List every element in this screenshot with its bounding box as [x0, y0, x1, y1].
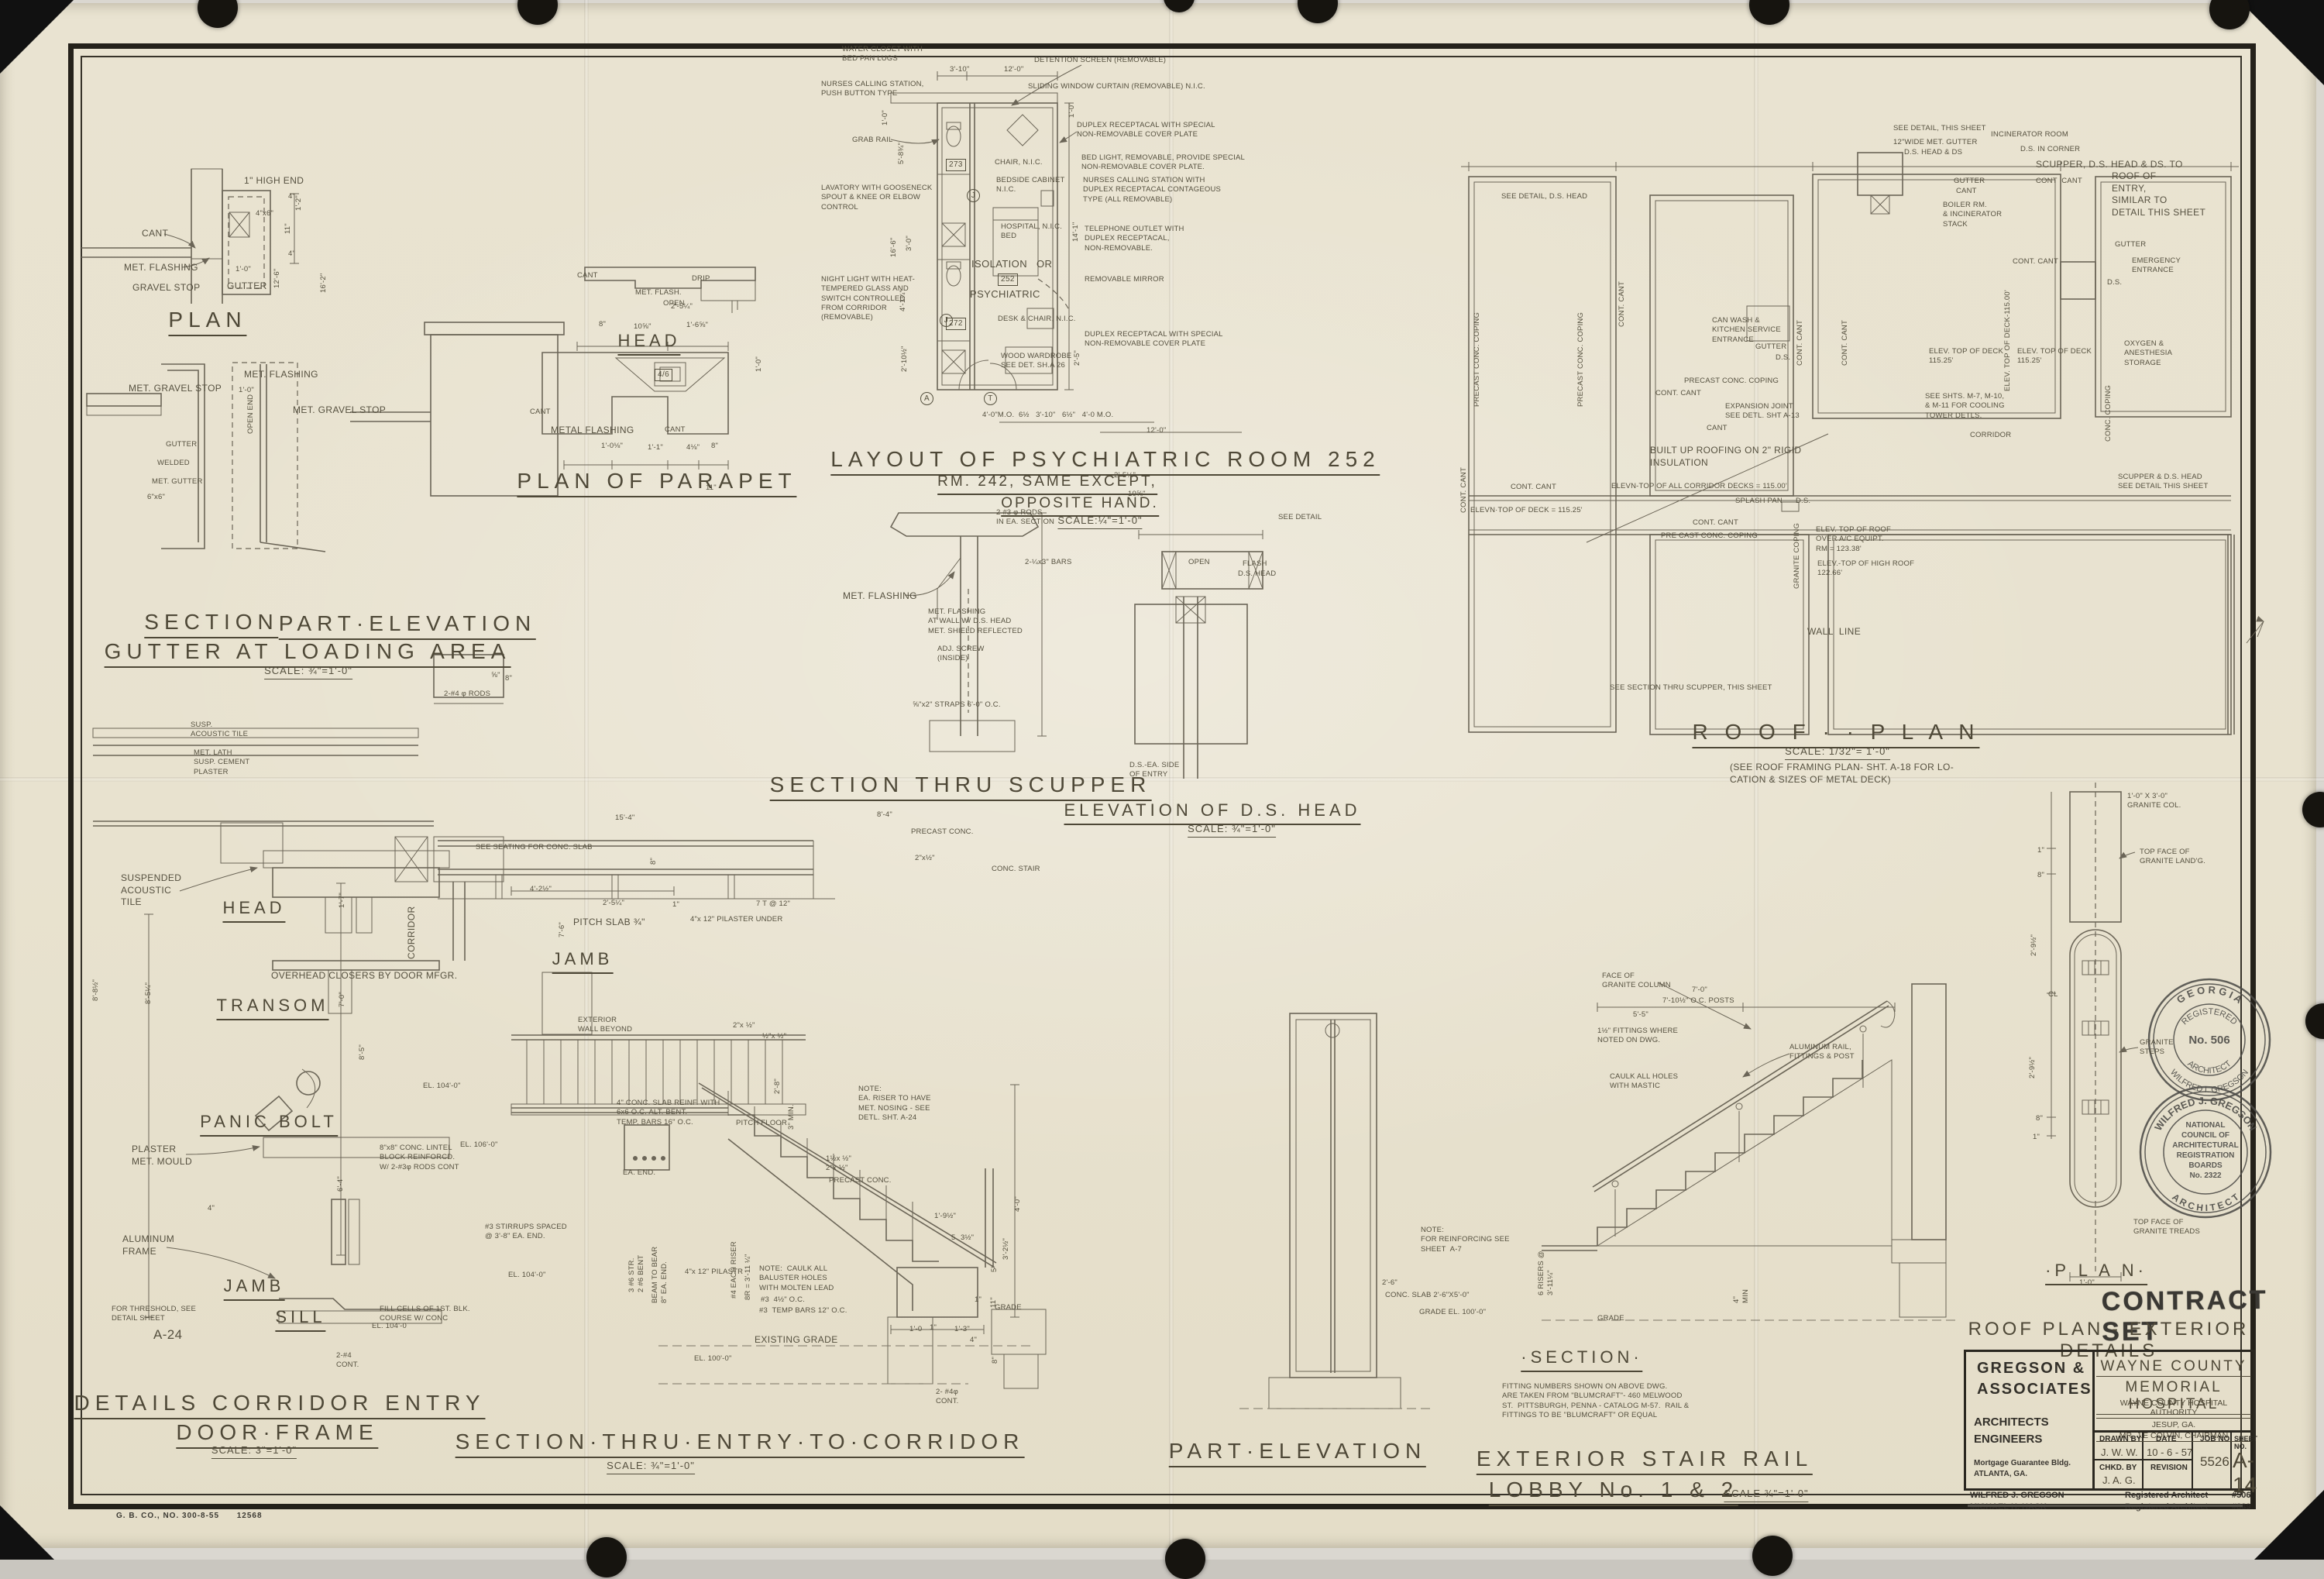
annotation-label: 8" — [2037, 871, 2044, 880]
annotation-label: 4"x6" — [256, 209, 273, 218]
linework-part-elevation — [1239, 1013, 1433, 1409]
annotation-label: SPLASH PAN — [1735, 497, 1783, 506]
annotation-label: NOTE: EA. RISER TO HAVE MET. NOSING - SE… — [858, 1085, 931, 1123]
annotation-label: NOTE: FOR REINFORCING SEE SHEET A-7 — [1421, 1226, 1510, 1254]
annotation-label: 5'-8¾" — [897, 143, 906, 164]
annotation-label: CORRIDOR — [406, 906, 418, 959]
stamp-text: No. 506 — [2188, 1034, 2229, 1047]
annotation-label: 11" — [989, 1297, 999, 1308]
annotation-label: EXTERIOR WALL BEYOND — [578, 1016, 632, 1035]
annotation-label: ROOF OF ENTRY, SIMILAR TO DETAIL THIS SH… — [2112, 170, 2205, 218]
annotation-label: PLASTER MET. MOULD — [132, 1144, 192, 1168]
drawing-title: SECTION·THRU·ENTRY·TO·CORRIDOR — [456, 1430, 1025, 1458]
annotation-label: 7'-10½" O.C. POSTS — [1662, 996, 1734, 1006]
annotation-label: DRIP — [692, 274, 710, 284]
linework-parapet-plan — [542, 342, 728, 470]
annotation-label: CONC. SLAB 2'-6"X5'-0" — [1385, 1291, 1470, 1300]
annotation-label: 1'-9½" — [934, 1212, 956, 1221]
linework-doorframe — [144, 851, 449, 1323]
drawing-title: SILL — [275, 1306, 325, 1332]
drawn-by-label: DRAWN BY — [2099, 1435, 2141, 1443]
annotation-label: 1½" FITTINGS WHERE NOTED ON DWG. — [1597, 1027, 1678, 1046]
annotation-label: 2"x ½" — [733, 1021, 755, 1030]
annotation-label: EL. 104'-0" — [423, 1082, 461, 1091]
annotation-label: SUSP. ACOUSTIC TILE — [191, 721, 248, 740]
annotation-label: 3'-2½" — [1002, 1238, 1011, 1260]
drawing-title: ·P L A N· — [2045, 1260, 2147, 1285]
annotation-label: MET. GUTTER — [152, 477, 203, 487]
annotation-label: CL — [2048, 990, 2058, 999]
punch-hole — [1165, 1539, 1205, 1579]
annotation-label: D.S. IN CORNER — [2020, 145, 2080, 154]
annotation-label: 1" — [975, 1295, 982, 1305]
annotation-label: #3 4½" O.C. — [761, 1295, 805, 1305]
annotation-label: GRANITE STEPS — [2140, 1038, 2174, 1058]
annotation-label: A — [920, 392, 933, 405]
annotation-label: CHAIR, N.I.C. — [995, 158, 1043, 167]
annotation-label: BED LIGHT, REMOVABLE, PROVIDE SPECIAL NO… — [1081, 153, 1245, 173]
svg-text:G E O R G I A: G E O R G I A — [2174, 984, 2245, 1006]
annotation-label: 2'-5¼" — [603, 899, 624, 908]
annotation-label: 1'-7" — [338, 893, 347, 908]
annotation-label: WATER CLOSET WITH BED PAN LUGS — [842, 45, 923, 64]
annotation-label: 1" — [2037, 846, 2044, 855]
annotation-label: 6 RISERS @ 3'-11¼" — [1537, 1250, 1556, 1295]
stamp-text: No. 2322 — [2189, 1171, 2222, 1180]
annotation-label: 11" — [706, 483, 717, 493]
annotation-label: #3 TEMP BARS 12" O.C. — [759, 1306, 847, 1316]
annotation-label: 1" — [2033, 1133, 2040, 1142]
annotation-label: 8" — [2036, 1114, 2043, 1123]
annotation-label: 3'-10" — [950, 65, 969, 74]
drawing-title: GUTTER AT LOADING AREA — [105, 640, 511, 668]
strike-line — [1968, 1505, 2243, 1507]
drawing-title: R O O F · · P L A N — [1692, 721, 1979, 748]
annotation-label: 8" — [991, 1357, 1000, 1364]
annotation-label: BEAM TO BEAR 8" EA. END. — [651, 1247, 670, 1303]
annotation-label: SEE SHTS. M-7, M-10, & M-11 FOR COOLING … — [1925, 392, 2005, 421]
title-block: CONTRACT SET ROOF PLAN - EXTERIOR DETAIL… — [1964, 1278, 2253, 1511]
annotation-label: 3" MIN. — [787, 1104, 796, 1130]
annotation-label: GUTTER — [166, 440, 197, 449]
annotation-label: D.S.-EA. SIDE OF ENTRY — [1129, 761, 1179, 780]
annotation-label: #3 STIRRUPS SPACED @ 3'-8" EA. END. — [485, 1223, 567, 1242]
annotation-label: SEE SECTION THRU SCUPPER, THIS SHEET — [1610, 683, 1772, 693]
annotation-label: PRECAST CONC. COPING — [1473, 312, 1482, 407]
drawing-title: SCALE: ¾"=1'-0" — [1188, 823, 1276, 838]
drawing-title: PART·ELEVATION — [1169, 1440, 1426, 1467]
firm-address: Mortgage Guarantee Bldg. ATLANTA, GA. — [1974, 1459, 2071, 1478]
annotation-label: LAVATORY WITH GOOSENECK SPOUT & KNEE OR … — [821, 184, 932, 212]
annotation-label: SUSPENDED ACOUSTIC TILE — [121, 872, 181, 909]
title-block-grid: GREGSON & ASSOCIATES ARCHITECTS ENGINEER… — [1964, 1350, 2255, 1491]
annotation-label: 4'-0"M.O. 6½ 3'-10" 6½" 4'-0 M.O. — [982, 411, 1113, 420]
annotation-label: 10⅝" — [634, 322, 651, 332]
annotation-label: CAN WASH & KITCHEN SERVICE ENTRANCE — [1712, 316, 1781, 345]
annotation-label: 1'-0" — [1067, 102, 1077, 118]
annotation-label: BUILT UP ROOFING ON 2" RIGID INSULATION — [1650, 445, 1802, 469]
chkd-by-value: J. A. G. — [2102, 1474, 2136, 1486]
annotation-label: ELEV. TOP OF ROOF OVER A/C EQUIPT. RM = … — [1816, 525, 1891, 554]
firm-role: ARCHITECTS ENGINEERS — [1974, 1416, 2049, 1446]
annotation-label: 1'-0" — [881, 110, 890, 126]
annotation-label: SEE DETAIL — [1278, 513, 1322, 522]
annotation-label: 1'-0⅛" — [601, 442, 623, 451]
scan-corner — [2254, 1490, 2324, 1560]
annotation-label: GUTTER — [227, 280, 267, 293]
annotation-label: GRAB RAIL — [852, 136, 892, 145]
stamp-text: NATIONAL — [2186, 1121, 2226, 1130]
annotation-label: PSYCHIATRIC — [970, 288, 1040, 301]
annotation-label: REMOVABLE MIRROR — [1085, 275, 1164, 284]
annotation-label: INCINERATOR ROOM — [1991, 130, 2068, 139]
annotation-label: WALL LINE — [1807, 626, 1861, 638]
annotation-label: FACE OF GRANITE COLUMN — [1602, 972, 1671, 991]
annotation-label: ADJ. SCREW (INSIDE) — [937, 645, 985, 664]
annotation-label: 5" — [990, 1265, 999, 1272]
annotation-label: SEE SEATING FOR CONC. SLAB — [476, 843, 593, 852]
annotation-label: MET. GRAVEL STOP — [129, 383, 222, 395]
drawing-title: JAMB — [552, 948, 614, 974]
drawing-title: LAYOUT OF PSYCHIATRIC ROOM 252 — [830, 448, 1380, 476]
stamp-text: ARCHITECTURAL — [2172, 1141, 2239, 1150]
annotation-label: SCUPPER & D.S. HEAD SEE DETAIL THIS SHEE… — [2118, 473, 2208, 492]
annotation-label: FLASH — [1243, 559, 1267, 569]
annotation-label: 5 — [951, 1233, 955, 1243]
drawing-title: DETAILS CORRIDOR ENTRY — [74, 1392, 485, 1419]
annotation-label: 4'-0" — [1013, 1196, 1023, 1212]
annotation-label: 5'-5" — [1633, 1010, 1648, 1020]
annotation-label: 1'-0 — [909, 1325, 922, 1334]
annotation-label: 4" CONC. SLAB REINF. WITH 6x6 O.C. ALT. … — [617, 1099, 720, 1127]
annotation-label: DETENTION SCREEN (REMOVABLE) — [1034, 56, 1166, 65]
annotation-label: ISOLATION OR — [971, 258, 1052, 271]
annotation-label: G. B. CO., NO. 300-8-55 12568 — [116, 1511, 263, 1521]
annotation-label: 1'-0" — [235, 265, 251, 274]
linework-granite-plan — [2047, 783, 2138, 1281]
annotation-label: EMERGENCY ENTRANCE — [2132, 256, 2181, 276]
annotation-label: CAULK ALL HOLES WITH MASTIC — [1610, 1072, 1678, 1092]
annotation-label: ⅝"x2" STRAPS 6'-0" O.C. — [913, 700, 1001, 710]
annotation-label: METAL FLASHING — [551, 425, 634, 437]
annotation-label: 1½x ½" 2"x ½" — [826, 1154, 851, 1174]
stamp-text: REGISTRATION — [2177, 1151, 2235, 1160]
annotation-label: 2-#4 CONT. — [336, 1351, 359, 1371]
annotation-label: 15'-4" — [615, 814, 634, 823]
annotation-label: 14'-1" — [1071, 222, 1081, 242]
annotation-label: HOSPITAL, N.I.C. BED — [1001, 222, 1062, 242]
annotation-label: CONT CANT — [2036, 177, 2082, 186]
annotation-label: BOILER RM. & INCINERATOR STACK — [1943, 201, 2002, 229]
drawing-title: SECTION THRU SCUPPER — [770, 773, 1152, 801]
annotation-label: GRADE EL. 100'-0" — [1419, 1308, 1486, 1317]
annotation-label: 3½" — [961, 1233, 974, 1243]
annotation-label: PITCH FLOOR — [736, 1119, 787, 1128]
drawing-title: PLAN — [168, 308, 246, 336]
annotation-label: CONT. CANT — [1841, 320, 1850, 366]
annotation-label: 4" — [970, 1336, 977, 1345]
annotation-label: ELEVN-TOP OF ALL CORRIDOR DECKS = 115.00… — [1611, 482, 1787, 491]
annotation-label: SEE DETAIL, D.S. HEAD — [1501, 192, 1587, 201]
annotation-label: MET. FLASHING — [124, 262, 198, 274]
annotation-label: 2 #3 φ RODS IN EA. SECTION — [996, 508, 1054, 528]
annotation-label: ½"x ½" — [762, 1032, 786, 1041]
drawing-title: TRANSOM — [217, 995, 329, 1020]
annotation-label: CANT — [1956, 187, 1977, 196]
annotation-label: DUPLEX RECEPTACAL WITH SPECIAL NON-REMOV… — [1077, 121, 1215, 140]
annotation-label: 8" — [649, 858, 658, 865]
annotation-label: D.S. — [1796, 497, 1810, 506]
annotation-label: TELEPHONE OUTLET WITH DUPLEX RECEPTACAL,… — [1085, 225, 1184, 253]
annotation-label: WOOD WARDROBE SEE DET. SH.A 26 — [1001, 352, 1071, 371]
annotation-label: SCUPPER, D.S. HEAD & DS. TO — [2036, 159, 2183, 171]
annotation-label: 4/6 — [655, 369, 672, 381]
annotation-label: 1'-3" — [954, 1325, 970, 1334]
annotation-label: D.S. — [1776, 353, 1790, 363]
svg-text:ARCHITECT: ARCHITECT — [2185, 1059, 2233, 1076]
annotation-label: 2'-5¼" — [1114, 471, 1136, 480]
annotation-label: DUPLEX RECEPTACAL WITH SPECIAL NON-REMOV… — [1085, 330, 1223, 349]
annotation-label: MET. LATH SUSP. CEMENT PLASTER — [194, 748, 249, 777]
annotation-label: 4" — [288, 249, 295, 259]
annotation-label: 2-¼x3" BARS — [1025, 558, 1072, 567]
annotation-label: OXYGEN & ANESTHESIA STORAGE — [2124, 339, 2172, 368]
annotation-label: CONC. STAIR — [992, 865, 1040, 874]
drawing-title: HEAD — [222, 897, 285, 923]
drawing-title: SCALE ¾"=1'-0" — [1724, 1488, 1808, 1502]
drawn-by-value: J. W. W. — [2101, 1447, 2138, 1458]
drawing-title: PLAN OF PARAPET — [517, 470, 796, 497]
annotation-label: 4'-1¼" — [899, 290, 908, 311]
annotation-label: ELEV. TOP OF DECK 115.25' — [2017, 347, 2092, 366]
stamp-text: COUNCIL OF — [2181, 1131, 2229, 1140]
annotation-label: 1'-2" — [294, 195, 304, 211]
drawing-title: HEAD — [617, 330, 680, 356]
annotation-label: EL. 106'-0" — [460, 1140, 498, 1150]
annotation-label: WELDED — [157, 459, 190, 468]
annotation-label: PITCH SLAB ¾" — [573, 917, 645, 929]
annotation-label: 12'-0" — [1004, 65, 1023, 74]
annotation-label: 11" — [284, 223, 293, 234]
annotation-label: 2'-10½" — [900, 346, 909, 372]
annotation-label: GRADE — [1597, 1314, 1624, 1323]
revision-label: REVISION — [2150, 1464, 2188, 1472]
annotation-label: 1'-1" — [648, 443, 663, 452]
annotation-label: 1'-0" — [2079, 1278, 2095, 1288]
annotation-label: 6'-4" — [336, 1176, 346, 1192]
annotation-label: MET. GRAVEL STOP — [293, 404, 386, 417]
annotation-label: FITTING NUMBERS SHOWN ON ABOVE DWG. ARE … — [1502, 1382, 1689, 1420]
annotation-label: OVERHEAD CLOSERS BY DOOR MFGR. — [271, 970, 458, 982]
annotation-label: CANT — [530, 408, 551, 417]
drawing-title: ELEVATION OF D.S. HEAD — [1064, 800, 1360, 825]
drawing-title: SECTION — [144, 611, 278, 638]
annotation-label: ⅝" — [491, 671, 500, 680]
scan-corner — [0, 1505, 54, 1560]
annotation-label: 1" HIGH END — [244, 175, 304, 187]
annotation-label: 8" — [711, 442, 718, 451]
annotation-label: 4" — [208, 1204, 215, 1213]
annotation-label: 8'-8½" — [91, 979, 101, 1001]
annotation-label: MET. FLASHING AT WALL W/ D.S. HEAD MET. … — [928, 607, 1023, 636]
drawing-title: LOBBY No. 1 & 2 — [1489, 1478, 1738, 1506]
annotation-label: 273 — [946, 159, 966, 171]
annotation-label: PRE CAST CONC. COPING — [1661, 531, 1758, 541]
annotation-label: 1'-6⅝" — [686, 321, 708, 330]
annotation-label: SEE DETAIL, THIS SHEET — [1893, 124, 1986, 133]
annotation-label: 12'-6" — [273, 269, 282, 288]
annotation-label: 1'-0" X 3'-0" GRANITE COL. — [2127, 792, 2181, 811]
annotation-label: CONT. CANT — [1796, 320, 1805, 366]
annotation-label: CONT. CANT — [2013, 257, 2058, 267]
annotation-label: D.S. HEAD & DS — [1904, 148, 1962, 157]
annotation-label: 1'-0" — [755, 356, 764, 372]
stamp-text: ARCHITECT — [2185, 1059, 2233, 1076]
annotation-label: D.S. HEAD — [1238, 569, 1276, 579]
annotation-label: 2'-5¼" — [671, 302, 693, 311]
annotation-label: ALUMINUM RAIL, FITTINGS & POST — [1789, 1043, 1855, 1062]
annotation-label: GUTTER — [1954, 177, 1985, 186]
stamp-text: REGISTERED — [2180, 1007, 2239, 1027]
annotation-label: 8" — [505, 674, 512, 683]
annotation-label: CONT. CANT — [1459, 467, 1469, 513]
annotation-label: FILL CELLS OF 1ST. BLK. COURSE W/ CONC — [380, 1305, 470, 1324]
annotation-label: ELEV. TOP OF DECK-115.00' — [2003, 290, 2013, 391]
annotation-label: 7'-6" — [558, 922, 567, 937]
annotation-label: 7 T @ 12" — [756, 900, 790, 909]
annotation-label: NOTE: CAULK ALL BALUSTER HOLES WITH MOLT… — [759, 1264, 834, 1293]
annotation-label: 3'-0" — [905, 236, 914, 251]
annotation-label: CANT — [142, 228, 168, 240]
annotation-label: 16'-2" — [319, 273, 328, 293]
annotation-label: NURSES CALLING STATION WITH DUPLEX RECEP… — [1083, 176, 1221, 205]
annotation-label: ALUMINUM FRAME — [122, 1233, 174, 1257]
blueprint-sheet: G E O R G I A REGISTERED No. 506 ARCHITE… — [0, 0, 2324, 1560]
annotation-label: SLIDING WINDOW CURTAIN (REMOVABLE) N.I.C… — [1028, 82, 1205, 91]
annotation-label: 4⅛" — [686, 443, 700, 452]
drawing-title: SCALE:¼"=1'-0" — [1057, 514, 1142, 529]
annotation-label: 8" — [599, 320, 606, 329]
drawing-title: JAMB — [224, 1275, 285, 1301]
annotation-label: J — [967, 189, 980, 202]
firm-name: GREGSON & ASSOCIATES — [1977, 1360, 2092, 1398]
ncarb-stamp: WILFRED J. GREGSON A R C H I T E C T NAT… — [2132, 1078, 2279, 1226]
annotation-label: (SEE ROOF FRAMING PLAN- SHT. A-18 FOR LO… — [1730, 762, 1954, 786]
annotation-label: EXPANSION JOINT SEE DETL. SHT A-13 — [1725, 402, 1800, 421]
date-label: DATE — [2156, 1435, 2176, 1443]
drawing-title: SCALE: 3"=1'-0" — [211, 1444, 297, 1459]
annotation-label: TOP FACE OF GRANITE LAND'G. — [2140, 848, 2205, 867]
annotation-label: 2'-8" — [773, 1078, 782, 1094]
drawing-title: SCALE: ¾"=1'-0" — [264, 665, 352, 679]
registered-architect-2: MICHAEL H. HACK Registered Architect #88… — [1970, 1502, 2249, 1512]
annotation-label: 16'-6" — [889, 238, 899, 257]
annotation-label: 4"x 12" PILASTER UNDER — [690, 915, 782, 924]
annotation-label: CONT. CANT — [1693, 518, 1738, 528]
annotation-label: 4'-2½" — [530, 885, 552, 894]
drawing-title: ·SECTION· — [1521, 1347, 1642, 1372]
annotation-label: 2"x½" — [915, 854, 935, 863]
annotation-label: CANT — [1707, 424, 1728, 433]
annotation-label: MET. FLASHING — [843, 590, 917, 603]
annotation-label: NURSES CALLING STATION, PUSH BUTTON TYPE — [821, 80, 924, 99]
annotation-label: 12"WIDE MET. GUTTER — [1893, 138, 1978, 147]
annotation-label: MET. FLASHING — [244, 369, 318, 381]
drawing-title: SCALE: ¾"=1'-0" — [607, 1460, 695, 1474]
annotation-label: 1" — [930, 1323, 937, 1333]
annotation-label: 1" — [672, 900, 679, 910]
annotation-label: CANT — [577, 271, 598, 280]
annotation-label: #4 EACH RISER — [730, 1241, 739, 1299]
linework-acoustic — [93, 728, 434, 863]
annotation-label: 8'-5¼" — [144, 982, 153, 1004]
annotation-label: PRECAST CONC. — [911, 827, 974, 837]
job-no-value: 5526 — [2200, 1454, 2229, 1470]
stamp-text: G E O R G I A — [2174, 984, 2245, 1006]
annotation-label: CONC. COPING — [2104, 385, 2113, 442]
annotation-label: 6"x6" — [147, 493, 165, 502]
annotation-label: 7'-0" — [1692, 986, 1707, 995]
annotation-label: J — [940, 314, 953, 327]
annotation-label: GUTTER — [1755, 342, 1786, 352]
annotation-label: 7'-0" — [338, 992, 347, 1007]
annotation-label: CONT. CANT — [1511, 483, 1556, 492]
annotation-label: EL. 104'-0" — [508, 1271, 546, 1280]
annotation-label: 2-#4 φ RODS — [444, 690, 490, 699]
annotation-label: D.S. — [2107, 278, 2122, 287]
annotation-label: PRECAST CONC. COPING — [1684, 377, 1779, 386]
annotation-label: GUTTER — [2115, 240, 2146, 249]
annotation-label: 8'-5" — [358, 1044, 367, 1060]
drawing-title: SCALE: 1/32"= 1'-0" — [1785, 745, 1890, 760]
annotation-label: ELEV.-TOP OF HIGH ROOF 122.66' — [1817, 559, 1914, 579]
punch-hole — [586, 1537, 627, 1577]
annotation-label: CONT. CANT — [1618, 281, 1627, 327]
annotation-label: A-24 — [153, 1326, 183, 1343]
annotation-label: T — [984, 392, 997, 405]
annotation-label: 12'-0" — [1147, 426, 1166, 435]
annotation-label: BEDSIDE CABINET N.I.C. — [996, 176, 1065, 195]
annotation-label: ELEV. TOP OF DECK 115.25' — [1929, 347, 2003, 366]
annotation-label: MET. FLASH. — [635, 288, 682, 298]
drawing-title: PANIC BOLT — [200, 1111, 338, 1137]
drawing-title: EXTERIOR STAIR RAIL — [1477, 1447, 1813, 1475]
annotation-label: EA. END. — [623, 1168, 655, 1178]
drawing-title: PART·ELEVATION — [279, 612, 536, 640]
annotation-label: 8R = 3'-11 ¼" — [744, 1254, 753, 1300]
annotation-label: 8"x8" CONC. LINTEL BLOCK REINFORCD. W/ 2… — [380, 1144, 459, 1172]
annotation-label: 2- #4φ CONT. — [936, 1388, 959, 1407]
punch-hole — [1752, 1536, 1793, 1576]
annotation-label: 252 — [998, 273, 1018, 286]
annotation-label: GRAVEL STOP — [132, 282, 201, 294]
annotation-label: 2'-5" — [1073, 350, 1082, 366]
annotation-label: 10⅝" — [1128, 490, 1146, 499]
annotation-label: OPEN END — [246, 394, 256, 434]
scan-corner — [2239, 0, 2324, 85]
annotation-label: CANT — [665, 425, 686, 435]
annotation-label: CORRIDOR — [1970, 431, 2011, 440]
annotation-label: GRANITE COPING — [1793, 523, 1802, 589]
annotation-label: EXISTING GRADE — [755, 1334, 838, 1347]
annotation-label: CONT. CANT — [1655, 389, 1701, 398]
annotation-label: TOP FACE OF GRANITE TREADS — [2133, 1218, 2200, 1237]
annotation-label: 2'-9½" — [2028, 1057, 2037, 1078]
annotation-label: 2'-6" — [1382, 1278, 1397, 1288]
annotation-label: 8'-4" — [877, 810, 892, 820]
job-no-label: JOB NO. — [2200, 1435, 2232, 1443]
annotation-label: OPEN — [1188, 558, 1210, 567]
